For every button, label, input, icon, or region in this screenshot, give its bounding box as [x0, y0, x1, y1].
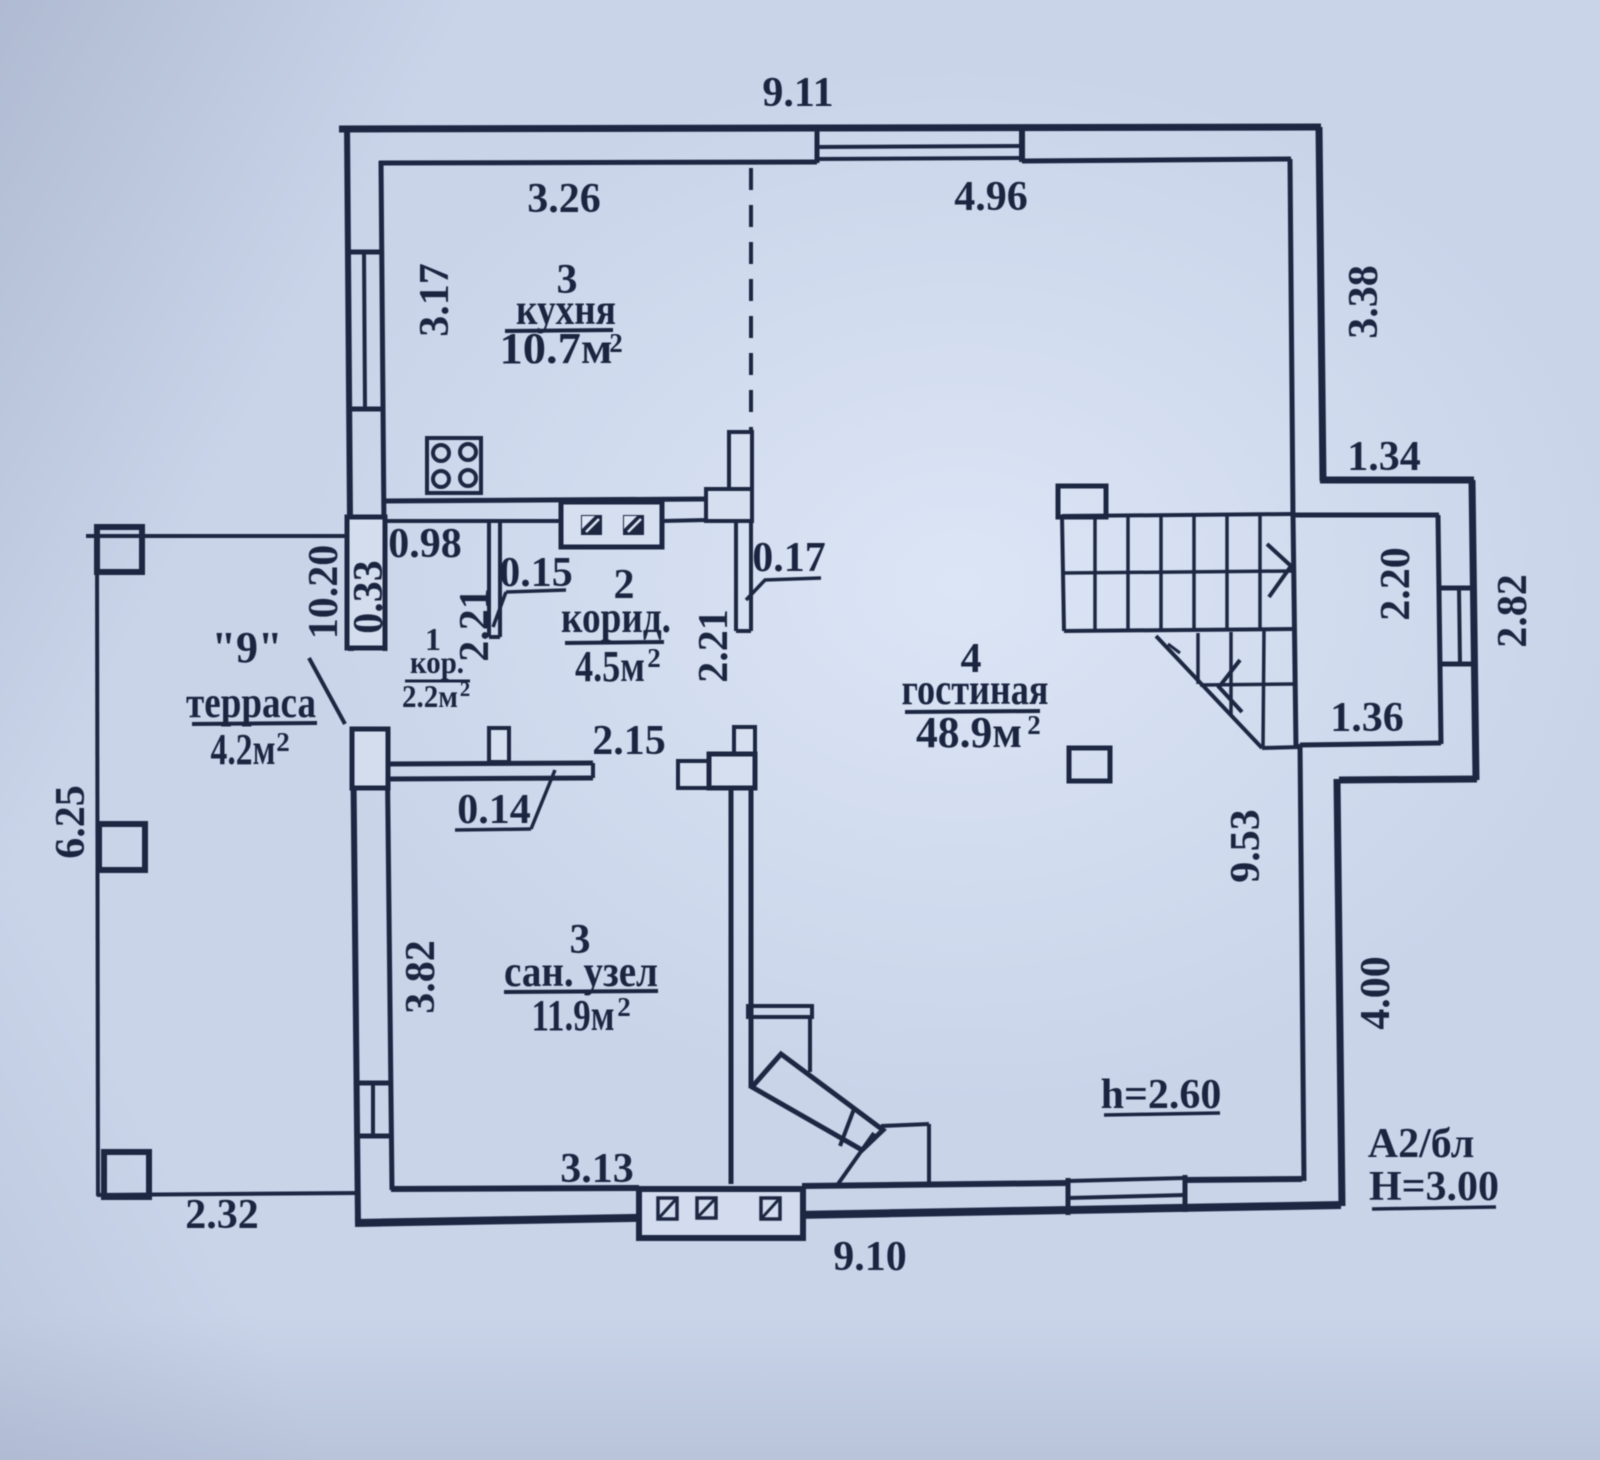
- svg-text:0.17: 0.17: [752, 535, 826, 581]
- svg-text:9.53: 9.53: [1223, 809, 1269, 883]
- svg-text:9.11: 9.11: [762, 70, 833, 116]
- svg-text:10.7м: 10.7м: [500, 324, 613, 373]
- svg-text:0.33: 0.33: [346, 560, 392, 634]
- svg-text:9.10: 9.10: [833, 1234, 907, 1280]
- svg-text:кор.: кор.: [410, 644, 464, 680]
- svg-text:48.9м: 48.9м: [916, 708, 1022, 757]
- svg-text:гостиная: гостиная: [902, 665, 1049, 714]
- svg-text:2: 2: [609, 328, 623, 358]
- svg-text:Н=3.00: Н=3.00: [1369, 1164, 1499, 1210]
- svg-text:2: 2: [647, 643, 661, 673]
- svg-text:2.21: 2.21: [691, 609, 737, 683]
- svg-text:2.2м: 2.2м: [402, 678, 458, 714]
- svg-text:терраса: терраса: [186, 678, 316, 727]
- svg-text:2: 2: [1027, 710, 1041, 740]
- svg-text:3.38: 3.38: [1341, 265, 1387, 339]
- svg-text:4.5м: 4.5м: [575, 642, 645, 691]
- svg-text:0.14: 0.14: [457, 787, 531, 833]
- svg-text:3.82: 3.82: [398, 940, 444, 1014]
- svg-text:1.34: 1.34: [1347, 434, 1421, 480]
- svg-text:2.20: 2.20: [1373, 547, 1419, 621]
- svg-text:"9": "9": [212, 623, 283, 672]
- svg-text:3.17: 3.17: [412, 263, 458, 337]
- svg-text:2: 2: [460, 677, 471, 701]
- svg-text:0.98: 0.98: [388, 521, 462, 567]
- svg-text:2.82: 2.82: [1490, 574, 1536, 648]
- svg-text:3.13: 3.13: [560, 1146, 634, 1192]
- svg-text:h=2.60: h=2.60: [1101, 1072, 1222, 1118]
- svg-text:11.9м: 11.9м: [532, 991, 615, 1040]
- svg-text:4.2м: 4.2м: [211, 725, 276, 774]
- svg-text:сан. узел: сан. узел: [504, 947, 658, 996]
- svg-text:3.26: 3.26: [527, 176, 601, 222]
- svg-text:4.96: 4.96: [954, 174, 1028, 220]
- svg-text:4.00: 4.00: [1353, 956, 1399, 1030]
- svg-text:А2/бл: А2/бл: [1368, 1121, 1475, 1167]
- svg-text:6.25: 6.25: [48, 785, 94, 859]
- svg-text:1.36: 1.36: [1330, 695, 1404, 741]
- svg-text:2.15: 2.15: [592, 718, 666, 764]
- svg-text:2.32: 2.32: [185, 1192, 259, 1238]
- svg-text:2: 2: [617, 992, 631, 1022]
- svg-text:2: 2: [276, 727, 290, 757]
- svg-text:10.20: 10.20: [301, 545, 347, 640]
- svg-text:корид.: корид.: [561, 593, 671, 642]
